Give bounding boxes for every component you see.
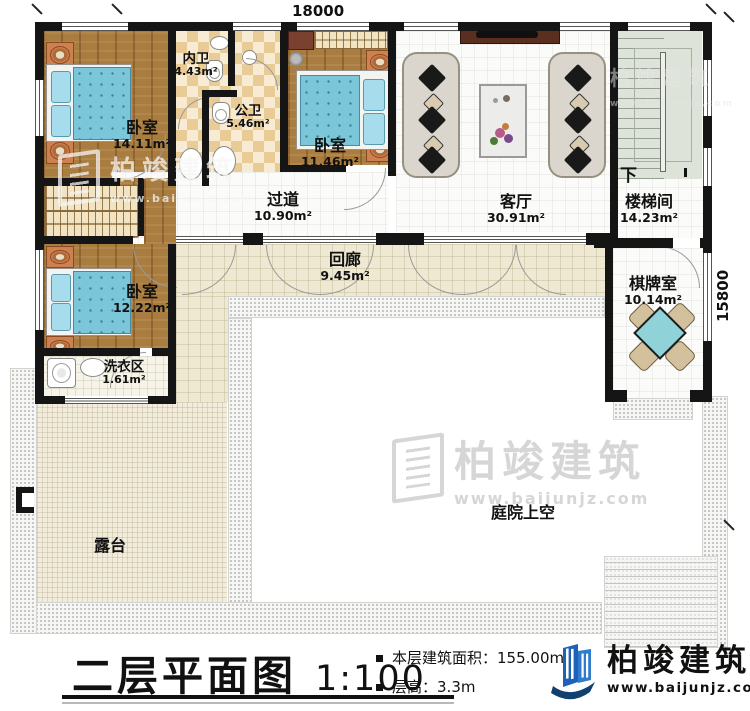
room-label-terrace: 露台 (94, 538, 126, 555)
sofa (548, 52, 606, 178)
window (703, 148, 712, 186)
gallery-floor-vertical (176, 296, 228, 402)
pillow (51, 105, 71, 137)
dimension-right: 15800 (714, 270, 732, 322)
dimension-tick (705, 3, 716, 14)
courtyard-railing-left (228, 318, 252, 604)
sofa-cushion (418, 146, 446, 174)
sofa-cushion (564, 64, 592, 92)
pillow (51, 71, 71, 103)
pillow (363, 113, 385, 145)
outdoor-stair-block (604, 556, 718, 648)
bottom-parapet-band (10, 602, 602, 634)
room-label-hallway: 过道 10.90m² (254, 192, 312, 222)
dimension-top: 18000 (292, 2, 344, 20)
wall (35, 348, 140, 356)
wall (610, 31, 618, 248)
wall (35, 236, 133, 244)
room-label-bedroom1: 卧室 14.11m² (113, 120, 171, 150)
terrace-floor (37, 402, 227, 604)
dimension-tick (723, 11, 734, 22)
stair-rail (660, 52, 666, 172)
dimension-tick (31, 3, 42, 14)
watermark-text: 柏竣建筑 (454, 437, 646, 486)
floor-plan-page: 下 柏竣建筑 www.baijunjz.com 柏竣建筑 www.baijunj… (0, 0, 750, 711)
wall (35, 22, 712, 31)
pillow (363, 79, 385, 111)
building-logo-icon (543, 640, 603, 704)
room-label-bedroom2: 卧室 11.46m² (301, 138, 359, 168)
room-label-chess-room: 棋牌室 10.14m² (624, 276, 682, 306)
flower (490, 137, 498, 145)
wall (202, 97, 209, 186)
bathtub (179, 148, 203, 180)
window (404, 22, 458, 31)
stair-arrow (684, 168, 687, 177)
wall (138, 178, 144, 236)
info-mark (376, 684, 383, 691)
wall (228, 31, 235, 86)
brand-logo-icon (543, 640, 603, 708)
dresser (288, 31, 314, 50)
sofa (402, 52, 460, 178)
flower (502, 123, 509, 130)
watermark: 柏竣建筑 www.baijunjz.com (392, 428, 649, 508)
window (628, 22, 690, 31)
wall (152, 348, 176, 356)
wall (690, 390, 712, 402)
nightstand (46, 246, 74, 268)
window (297, 22, 369, 31)
wall (243, 233, 263, 245)
wall (168, 244, 176, 396)
flower (504, 134, 513, 143)
sofa-cushion (418, 64, 446, 92)
room-label-gallery: 回廊 9.45m² (320, 252, 369, 282)
stair-direction-label: 下 (620, 161, 637, 186)
dimension-tick (111, 3, 122, 14)
courtyard-railing-top (228, 296, 605, 318)
wall (280, 31, 288, 172)
wardrobe (45, 185, 139, 211)
terrace-drain-bracket (16, 487, 34, 513)
room-label-bedroom3: 卧室 12.22m² (113, 284, 171, 314)
wall (586, 233, 610, 245)
sofa-cushion (564, 106, 592, 134)
wall (376, 233, 424, 245)
window (35, 80, 44, 136)
wall (388, 31, 396, 176)
coffee-table (479, 84, 527, 158)
basket (289, 52, 303, 66)
pillow (51, 303, 71, 331)
wall (148, 396, 176, 404)
table-decor (493, 98, 498, 103)
info-area-label: 本层建筑面积： (392, 649, 497, 667)
window (62, 22, 128, 31)
window (560, 22, 610, 31)
tv (476, 31, 538, 38)
wardrobe (314, 31, 388, 49)
wardrobe (45, 211, 139, 237)
window (65, 398, 148, 404)
window (35, 250, 44, 330)
french-window (176, 236, 243, 243)
info-height-value: 3.3m (437, 678, 475, 696)
window (233, 22, 281, 31)
sofa-cushion (418, 106, 446, 134)
wall (35, 396, 65, 404)
room-label-public-bath: 公卫 5.46m² (226, 104, 269, 130)
room-label-courtyard: 庭院上空 (491, 505, 555, 522)
window (703, 253, 712, 341)
wall (35, 178, 120, 186)
sink (212, 146, 236, 176)
sink (210, 36, 229, 50)
room-label-inner-bath: 内卫 4.43m² (174, 52, 217, 78)
info-floor-height: 层高：3.3m (392, 679, 475, 696)
room-label-laundry: 洗衣区 1.61m² (102, 360, 145, 386)
sofa-cushion (564, 146, 592, 174)
window (703, 60, 712, 116)
info-height-label: 层高： (392, 678, 437, 696)
french-window (263, 236, 376, 243)
watermark-logo-icon (392, 432, 444, 503)
wall (202, 90, 237, 97)
table-decor (503, 95, 510, 102)
room-label-stair-hall: 楼梯间 14.23m² (620, 194, 678, 224)
washing-machine (47, 358, 76, 388)
wall (605, 238, 613, 400)
room-label-living-room: 客厅 30.91m² (487, 194, 545, 224)
wall (700, 238, 712, 248)
brand-logo-text: 柏竣建筑 www.baijunjz.com (607, 646, 750, 696)
plan-title: 二层平面图1:100 (72, 642, 426, 702)
brand-name: 柏竣建筑 (607, 646, 750, 677)
passage-floor (144, 178, 176, 244)
brand-website: www.baijunjz.com (607, 680, 750, 696)
wall (605, 390, 627, 402)
title-underline-shadow (62, 702, 454, 704)
pillow (51, 274, 71, 302)
french-window (424, 236, 586, 243)
plan-title-text: 二层平面图 (72, 652, 297, 700)
info-mark (376, 655, 383, 662)
